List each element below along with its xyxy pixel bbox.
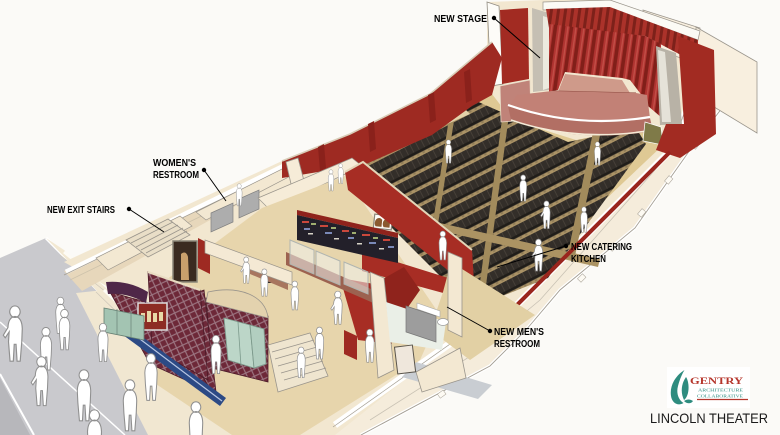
svg-text:NEW EXIT STAIRS: NEW EXIT STAIRS: [47, 205, 115, 216]
svg-text:GENTRY: GENTRY: [690, 377, 743, 387]
svg-text:RESTROOM: RESTROOM: [153, 170, 199, 181]
svg-text:NEW STAGE: NEW STAGE: [434, 14, 487, 25]
svg-text:NEW MEN'S: NEW MEN'S: [494, 327, 544, 338]
svg-text:COLLABORATIVE: COLLABORATIVE: [697, 394, 743, 399]
svg-text:KITCHEN: KITCHEN: [571, 254, 606, 265]
svg-text:NEW CATERING: NEW CATERING: [571, 242, 632, 253]
svg-text:ARCHITECTURE: ARCHITECTURE: [698, 388, 743, 393]
svg-text:WOMEN'S: WOMEN'S: [153, 158, 196, 169]
svg-text:RESTROOM: RESTROOM: [494, 339, 540, 350]
svg-text:LINCOLN THEATER: LINCOLN THEATER: [650, 410, 768, 426]
